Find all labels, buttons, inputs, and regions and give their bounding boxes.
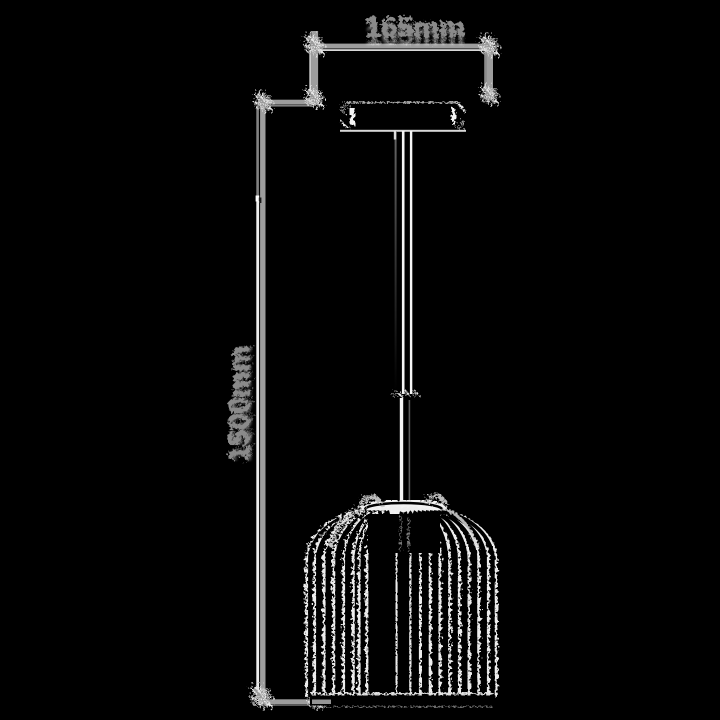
svg-text:1500mm: 1500mm — [224, 346, 256, 462]
svg-text:165mm: 165mm — [365, 12, 465, 44]
